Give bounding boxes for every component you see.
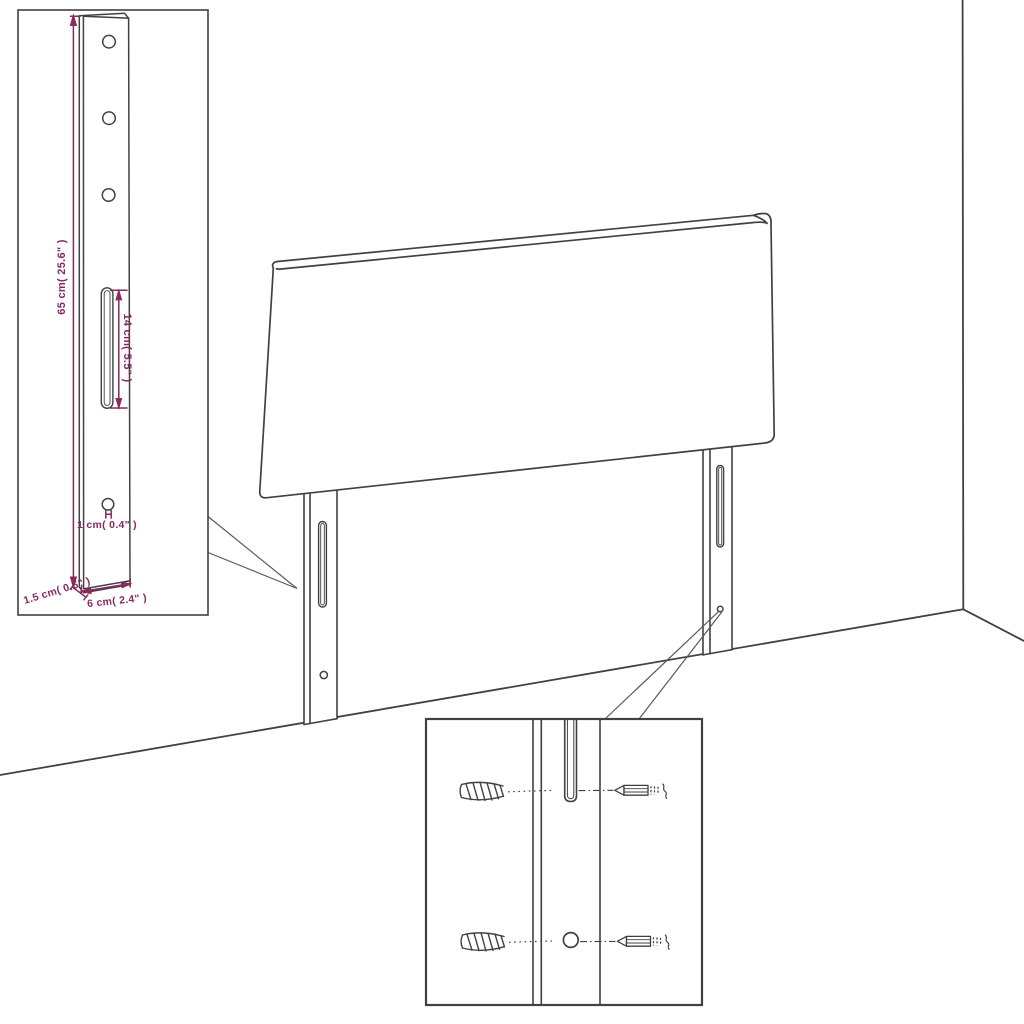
headboard-left-leg <box>304 460 337 725</box>
dimension-label-leg-height: 65 cm( 25.6" ) <box>56 239 68 314</box>
dimension-label-hole-diameter: 1 cm( 0.4" ) <box>77 519 137 531</box>
detail-callout-line-left <box>605 612 718 719</box>
mounting-hardware-inset <box>426 719 702 1005</box>
floor-line-right <box>963 609 1024 641</box>
dimension-label-slot-length: 14 cm( 5.5" ) <box>121 313 133 382</box>
detail-callout-line-right <box>639 612 722 719</box>
wall-corner-line <box>963 0 964 609</box>
headboard-panel <box>260 213 774 497</box>
diagram-canvas: 65 cm( 25.6" ) 14 cm( 5.5" ) 1 cm( 0.4" … <box>0 0 1024 1024</box>
headboard-assembly-diagram <box>0 0 1024 1024</box>
inset-callout-line-lower <box>208 553 297 589</box>
inset-callout-line-upper <box>208 517 297 589</box>
headboard-right-leg <box>703 430 732 655</box>
callout-lines <box>208 517 722 720</box>
